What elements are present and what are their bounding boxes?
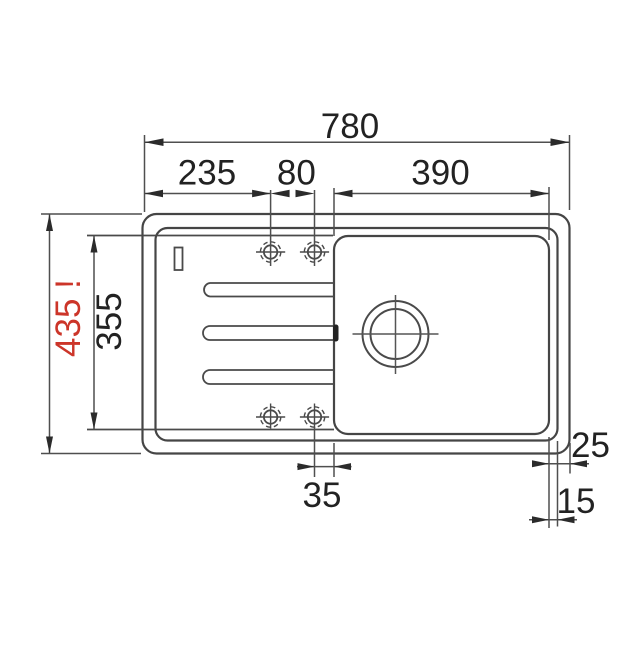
svg-text:15: 15 <box>557 482 596 521</box>
svg-text:390: 390 <box>411 154 469 193</box>
svg-text:435 !: 435 ! <box>49 279 88 357</box>
svg-text:80: 80 <box>277 154 316 193</box>
svg-text:235: 235 <box>178 154 236 193</box>
svg-text:780: 780 <box>321 107 379 146</box>
svg-text:355: 355 <box>90 292 129 350</box>
svg-text:25: 25 <box>571 426 610 465</box>
svg-text:35: 35 <box>303 476 342 515</box>
